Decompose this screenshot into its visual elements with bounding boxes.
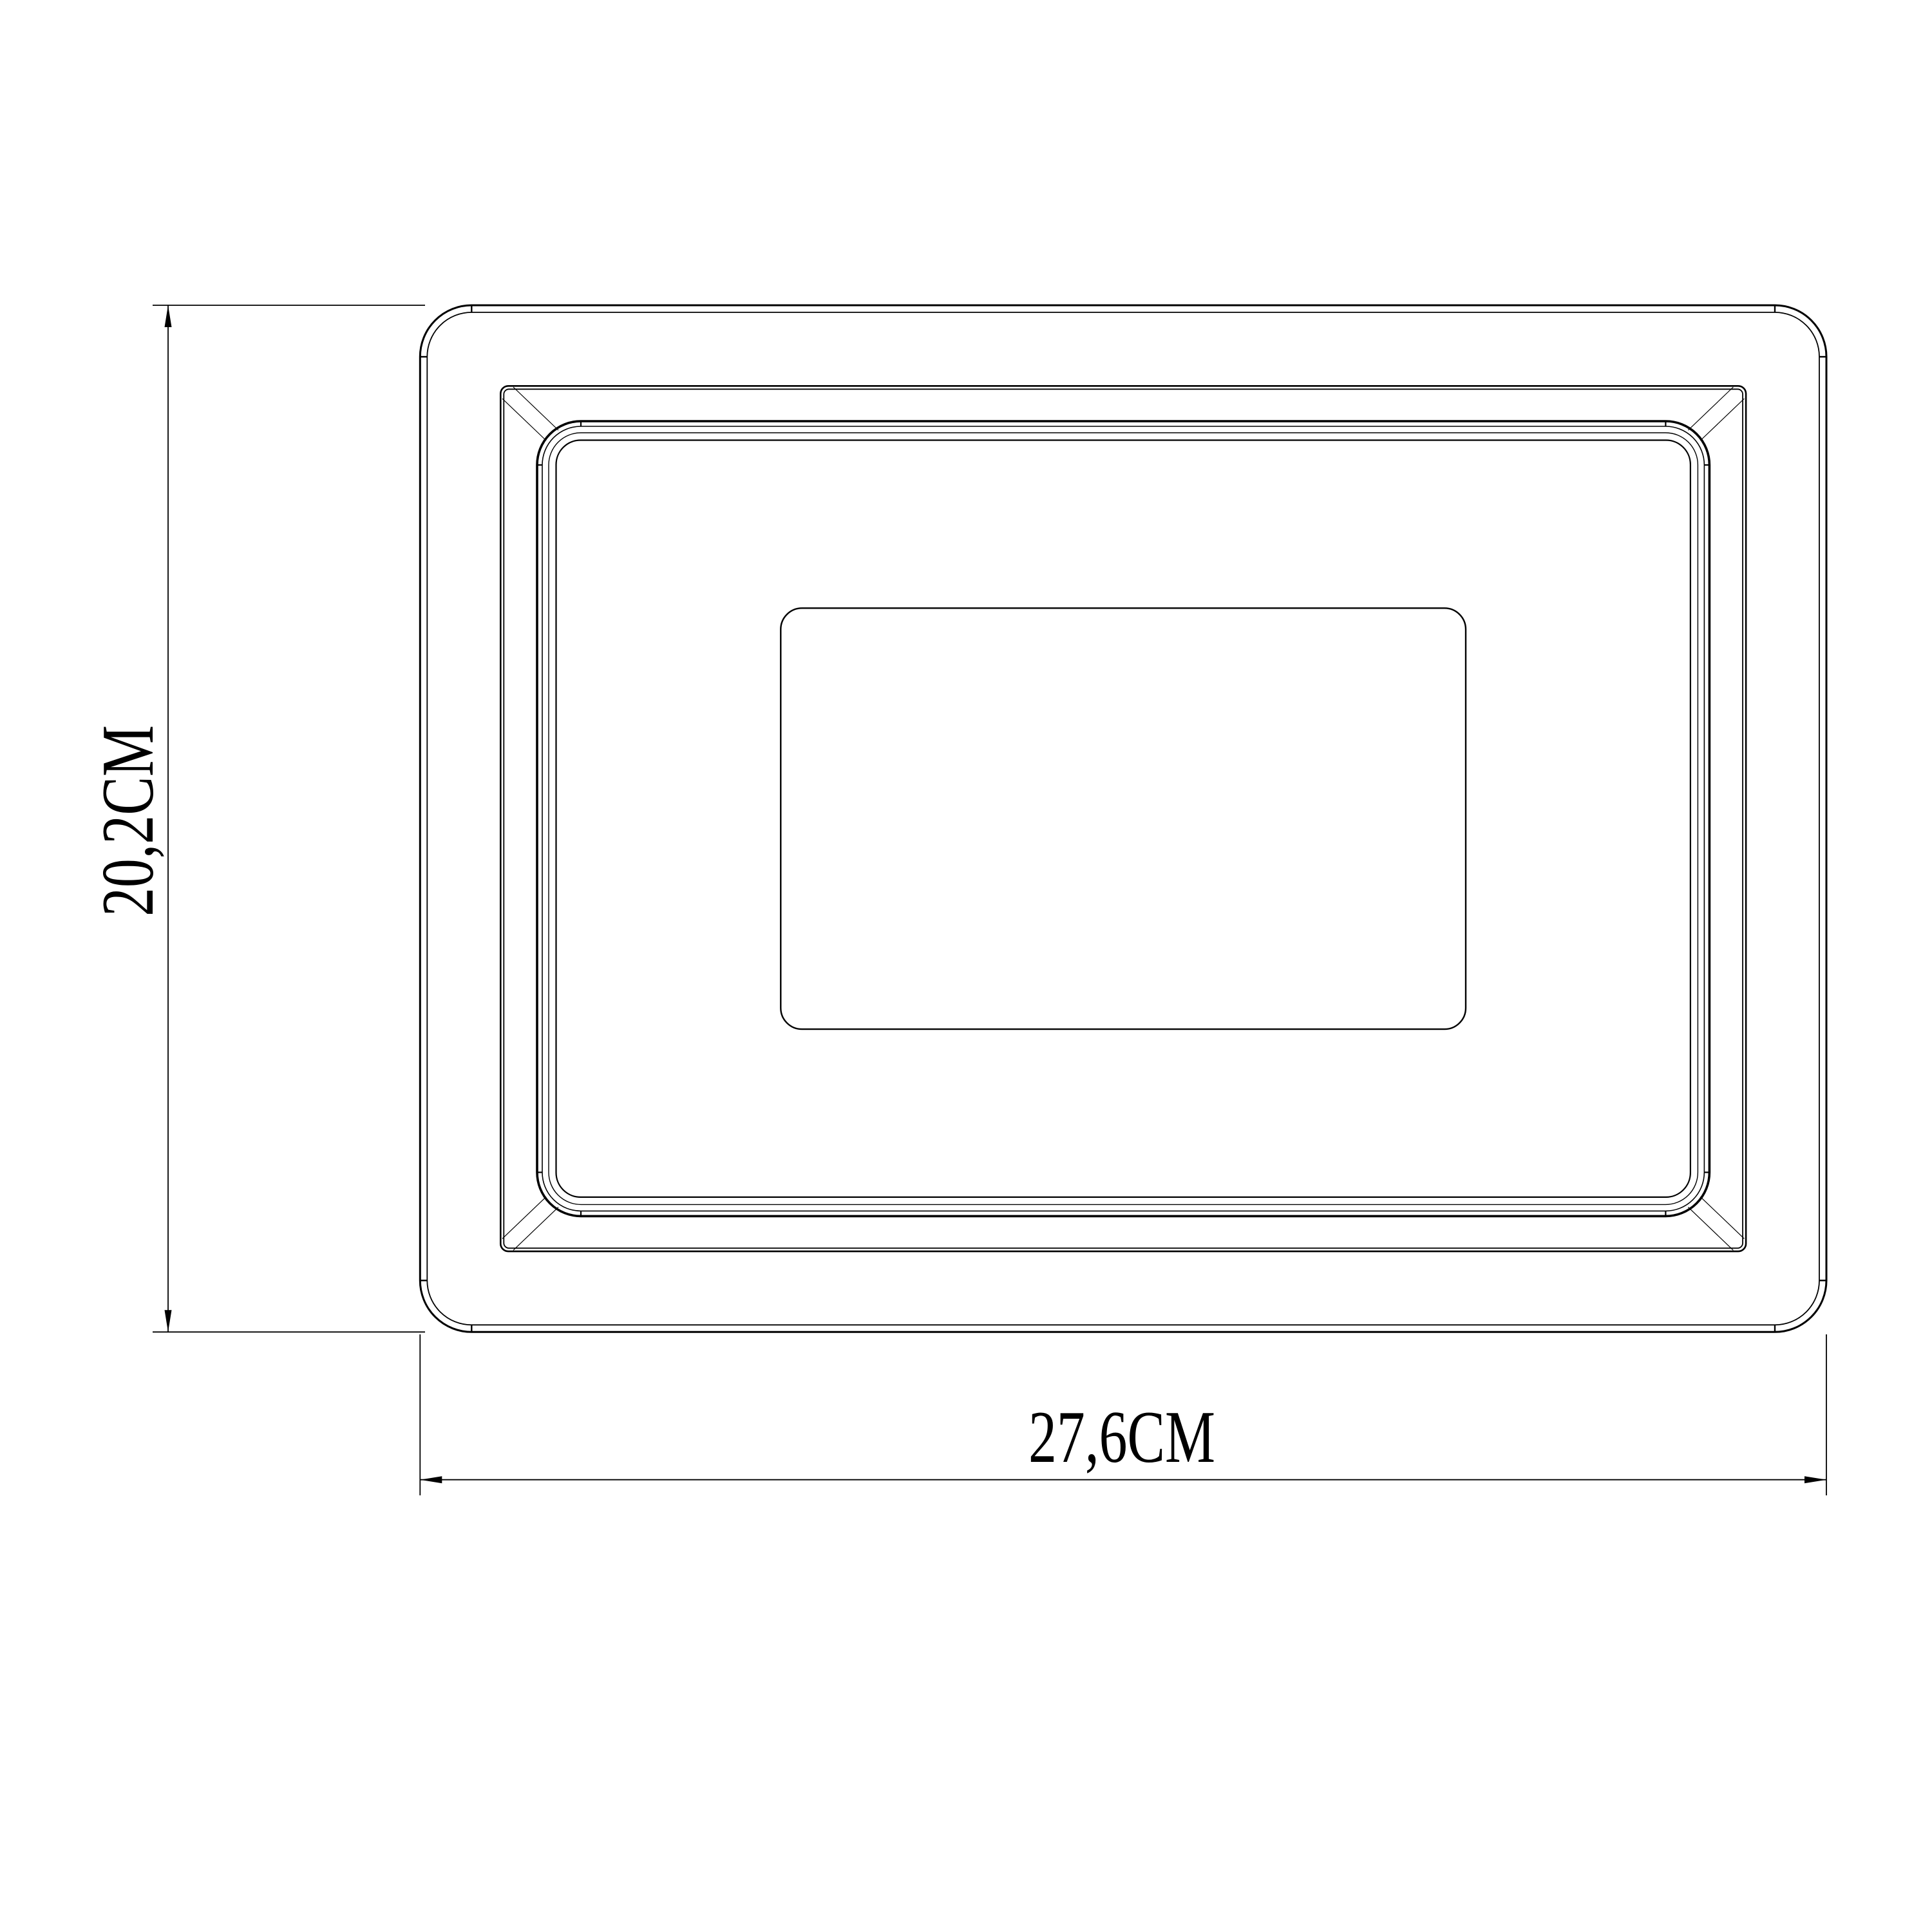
chamfer-line — [1700, 399, 1744, 440]
inner-frame-ticks — [537, 421, 1709, 1216]
chamfer-line — [502, 1197, 546, 1238]
led-window-outline — [781, 608, 1466, 1029]
chamfer-line — [1700, 1197, 1744, 1238]
bezel-outer-rim-inner-line — [504, 389, 1743, 1248]
inner-frame-inner-line — [556, 440, 1690, 1197]
outer-fillet-ticks — [420, 305, 1826, 1332]
inner-frame-fillet-edge — [542, 426, 1704, 1211]
inner-frame-outline — [537, 421, 1709, 1216]
chamfer-line — [502, 399, 546, 440]
chamfer-line — [1688, 1207, 1733, 1250]
width-dimension-label: 27,6CM — [1028, 1396, 1215, 1478]
chamfer-line — [513, 387, 558, 430]
bezel-corner-chamfer-lines — [502, 387, 1744, 1250]
arrow-right-icon — [1804, 1476, 1826, 1483]
inner-frame-mid-line — [549, 433, 1698, 1204]
chamfer-line — [513, 1207, 558, 1250]
height-dimension: 20,2CM — [87, 305, 425, 1332]
chamfer-line — [1688, 387, 1733, 430]
bezel-outer-rim — [500, 386, 1746, 1251]
outer-body-fillet-edge — [427, 312, 1819, 1325]
height-dimension-label: 20,2CM — [87, 725, 169, 916]
width-dimension: 27,6CM — [420, 1334, 1826, 1495]
arrow-up-icon — [165, 305, 172, 327]
floodlight-front-view — [420, 305, 1826, 1332]
outer-body-outline — [420, 305, 1826, 1332]
cad-drawing-canvas: 20,2CM 27,6CM — [0, 0, 1932, 1932]
arrow-left-icon — [420, 1476, 442, 1483]
drawing-sheet: 20,2CM 27,6CM — [0, 0, 1932, 1932]
arrow-down-icon — [165, 1310, 172, 1332]
